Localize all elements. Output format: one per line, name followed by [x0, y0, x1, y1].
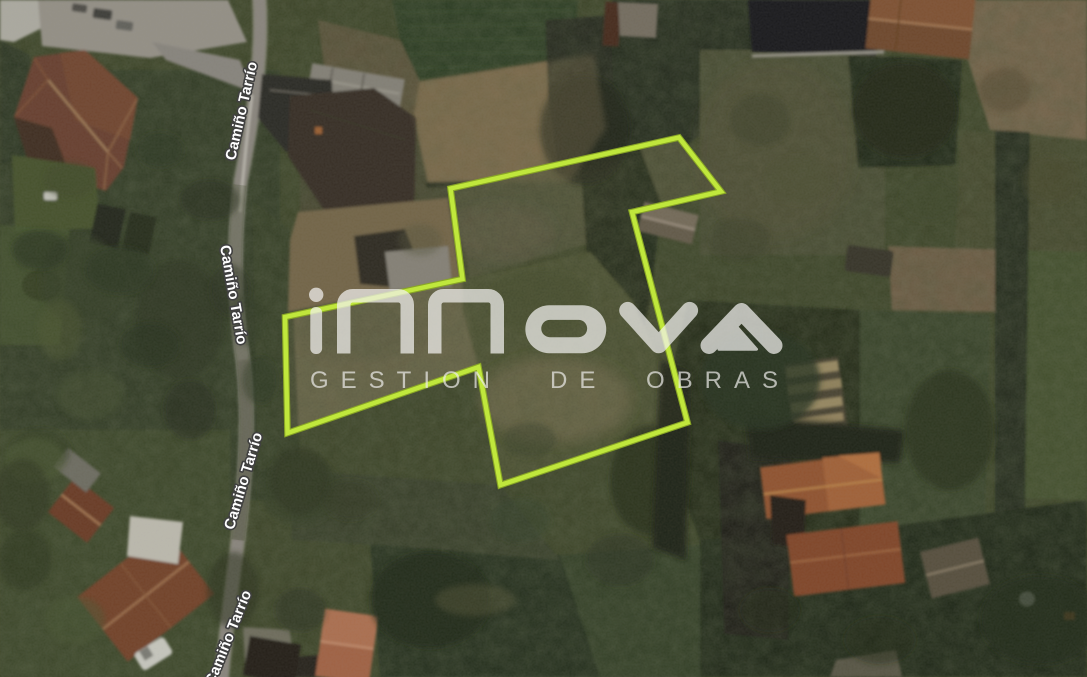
svg-text:GESTION: GESTION — [310, 367, 502, 394]
svg-text:DE: DE — [550, 367, 607, 394]
svg-text:OBRAS: OBRAS — [646, 367, 790, 394]
